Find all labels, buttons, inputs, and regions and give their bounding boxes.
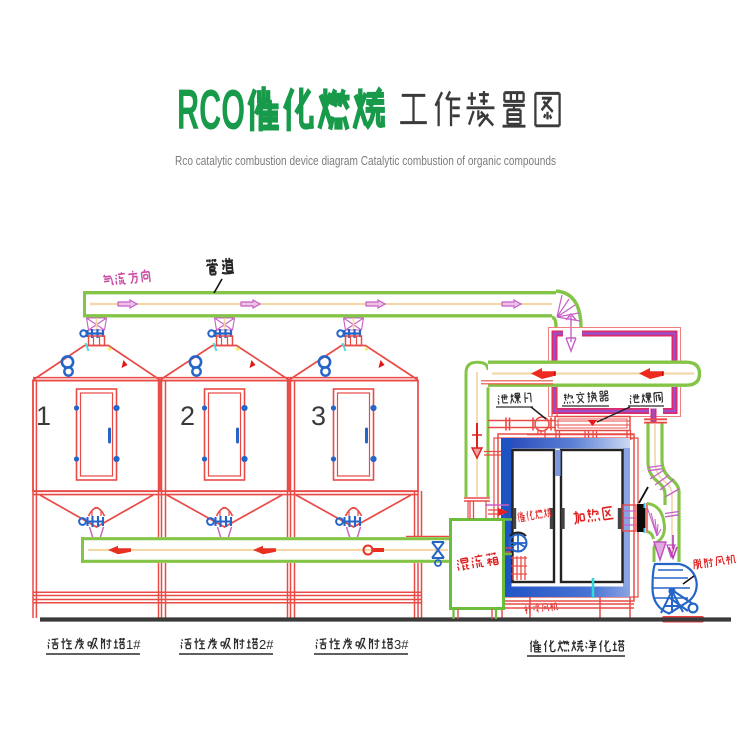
- svg-text:2: 2: [180, 401, 195, 431]
- svg-text:3: 3: [311, 401, 326, 431]
- svg-text:2#: 2#: [259, 637, 274, 652]
- svg-text:3#: 3#: [394, 637, 409, 652]
- svg-text:1#: 1#: [126, 637, 141, 652]
- svg-text:RCO: RCO: [177, 78, 245, 142]
- svg-text:Rco catalytic combustion devic: Rco catalytic combustion device diagram …: [175, 153, 556, 168]
- svg-text:1: 1: [36, 401, 51, 431]
